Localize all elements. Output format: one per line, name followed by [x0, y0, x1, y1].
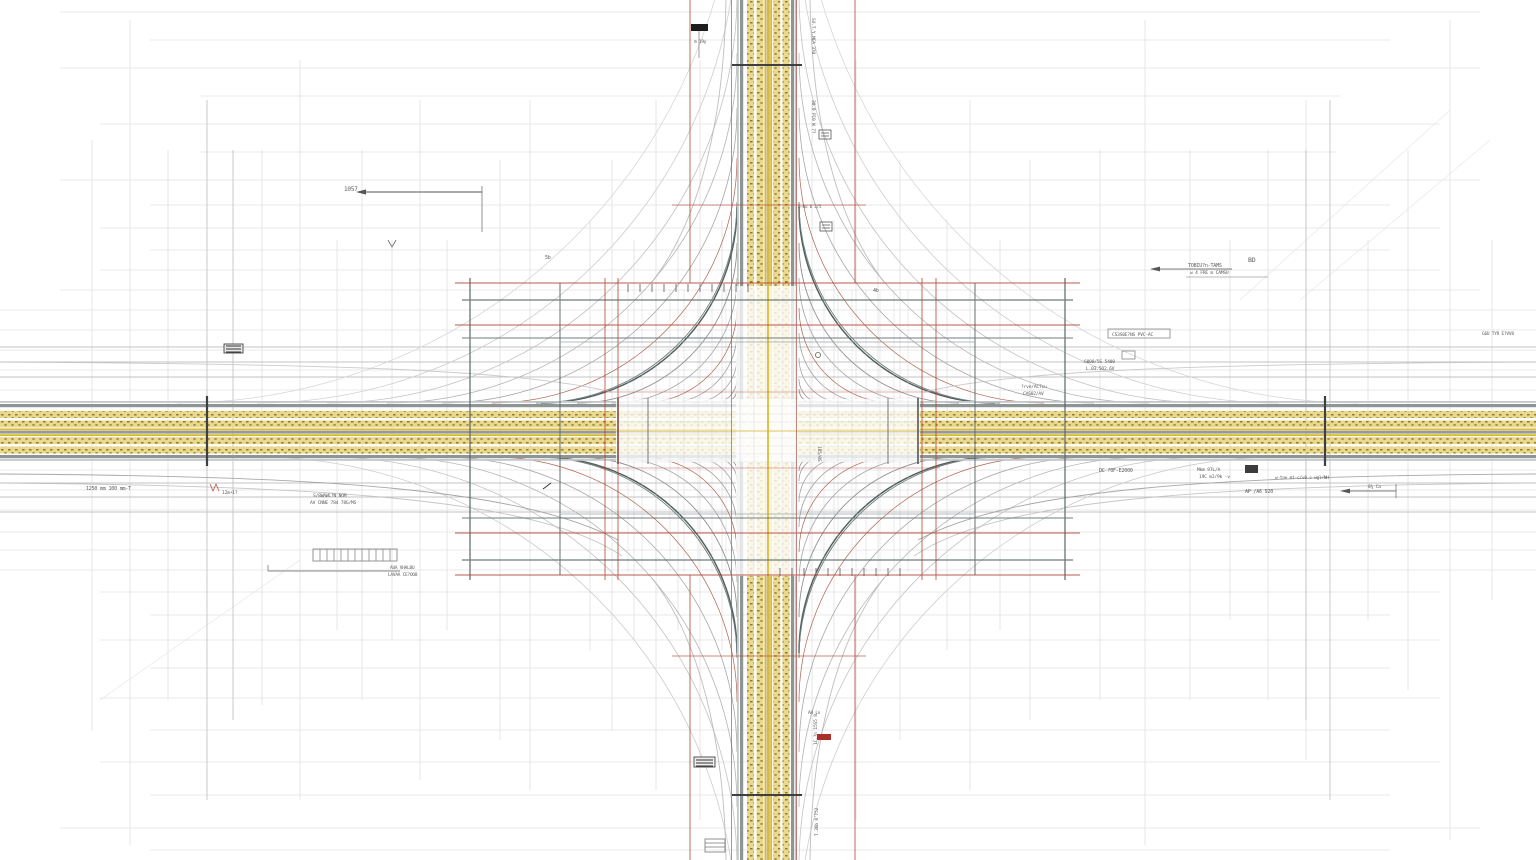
box-label: CS3S0E?NS PVC-AC — [1112, 332, 1153, 338]
intersection-plan-canvas: 1057 BD TOBIU?n-TAMS w 4 FRE m CAMSU 125… — [0, 0, 1536, 860]
annotation-label: Mkm 97L/A — [1197, 467, 1221, 473]
annotation-label: G-mu b 3/5 — [798, 204, 822, 209]
annotation-label: L.03.5O2.6V — [1086, 366, 1115, 372]
annotation-label: 6000/5S 5400 — [1084, 359, 1115, 365]
corner-arcs-top-left — [177, 0, 737, 403]
center-node-circle — [815, 352, 820, 357]
annotation-label: G6U TYR E?VV8 — [1482, 331, 1514, 337]
corner-arcs-top-right — [799, 0, 1359, 403]
dimension-label: 1250 mm 100 mm-T — [86, 486, 131, 492]
annotation-label: S/8WAWL?N NOM — [313, 493, 347, 499]
annotation-label: AH Ln — [808, 710, 821, 716]
annotation-label: CAS02/AV — [1023, 391, 1044, 397]
annotation-label: AUA VHALBU — [390, 565, 415, 571]
station-label: T.36b 8'T52 — [814, 807, 820, 836]
station-label: SU.T.Y.MCA 3?0 — [810, 18, 816, 54]
annotation-label: m 19y — [694, 39, 707, 45]
station-label: 30.0 P19 W 7? — [810, 100, 816, 134]
annotation-label: LAVAA CE?OO8 — [388, 572, 418, 578]
annotation-label: 19C m2/9k -v — [1199, 474, 1230, 480]
annotation-label: w 4 FRE m CAMSU — [1190, 270, 1229, 276]
intersection-open-area — [616, 0, 920, 860]
annotation-label: TOBIU?n-TAMS — [1188, 263, 1222, 269]
dimension-top-left — [356, 186, 482, 232]
detail-box-lower — [820, 222, 832, 231]
signal-block-left — [224, 344, 243, 353]
annotation-label: ?rve/AC7cu — [1021, 384, 1047, 390]
annotation-label: 185/0S — [816, 446, 822, 462]
dark-marker-block-right — [1245, 465, 1258, 473]
red-marker-block — [817, 734, 831, 740]
annotation-label: AP /A6 920 — [1245, 489, 1273, 495]
dimension-label: 1057 — [344, 186, 358, 193]
tiny-check-mark — [543, 483, 551, 489]
annotation-label: w-tne mt-c/v0.c wgl/NH — [1275, 475, 1329, 481]
dimension-label: 8¾ Ca — [1368, 484, 1381, 490]
annotation-label: 5b — [545, 255, 551, 261]
intersection-plan-svg: 1057 BD TOBIU?n-TAMS w 4 FRE m CAMSU 125… — [0, 0, 1536, 860]
station-label: 1C.?n 15S5 8 — [813, 714, 819, 745]
annotation-label: BD — [1248, 256, 1256, 264]
annotation-label: 12m+1? — [222, 490, 238, 496]
annotation-label: DC ?0F-E2000 — [1099, 468, 1133, 474]
signal-block-bottom — [694, 757, 715, 767]
annotation-label: 4b — [873, 288, 879, 294]
crosswalk-ladder — [268, 549, 400, 571]
annotation-label: AV CNNE 784 78G/MS — [310, 500, 357, 506]
